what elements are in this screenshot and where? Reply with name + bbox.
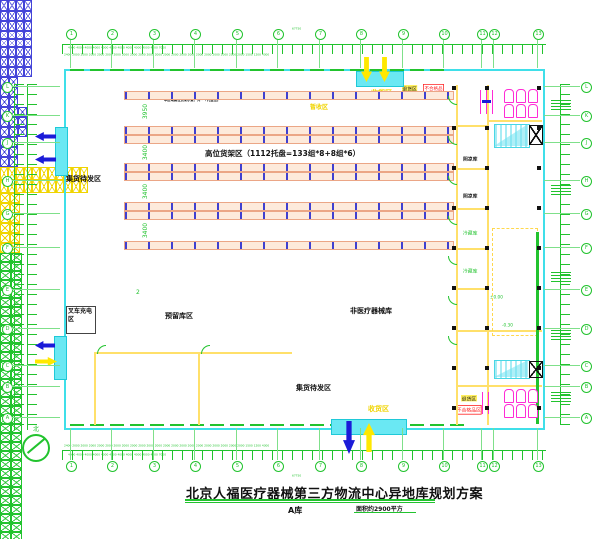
rack-cell [11,523,22,532]
grid-line [70,428,71,460]
grid-line [194,428,195,460]
rack-cell [0,352,11,361]
grid-number-bubble: 11 [477,29,488,40]
grid-letter-bubble: A [581,413,592,424]
overall-dimension-top: 67750 [292,27,301,30]
grid-line [236,40,237,68]
grid-line [194,40,195,68]
rack-cell [16,21,24,31]
grid-line [12,386,60,387]
rack-cell [16,11,24,21]
grid-number-bubble: 4 [190,29,201,40]
grid-letter-bubble: A [2,413,13,424]
bottom-wall-openings [70,424,470,426]
rack-cluster [0,67,32,77]
cool-room-2-label: 阴凉库 [463,192,477,199]
tick-dimensions-top: 2400 2000 2000 2000 2000 2000 2000 2000 … [64,53,269,56]
bottom-room-wall [94,352,96,425]
rack-cell [0,127,9,137]
rack-cell [11,487,22,496]
grid-letter-bubble: G [2,209,13,220]
grid-line [12,247,60,248]
rack-cell [16,67,24,77]
grid-line [360,428,361,460]
toilet-fixture [504,89,514,103]
rack-cell [11,451,22,460]
grid-line [544,86,580,87]
rack-cell [0,298,11,307]
rack-cell [0,262,11,271]
column-marker [485,366,489,370]
grid-number-bubble: 9 [398,29,409,40]
rack-cell [8,31,16,39]
north-compass-icon [22,434,50,462]
grid-line [277,428,278,460]
tick-dimensions-bottom: 2400 2000 2000 2000 2000 2000 2000 2000 … [64,444,269,447]
grid-number-bubble: 7 [315,29,326,40]
column-marker [452,126,456,130]
rack-cell [0,67,8,77]
rack-cell [16,47,24,57]
grid-number-bubble: 8 [356,461,367,472]
toilet-fixture [528,89,538,103]
rack-cell [56,180,64,193]
grid-line [111,40,112,68]
dimension-ticks-right [560,84,570,425]
stall-divider [482,392,483,414]
column-marker [485,126,489,130]
high-bay-zone-label: 高位货架区（1112托盘=133组*8+8组*6） [205,148,360,159]
high-bay-rack-row [124,211,454,220]
high-bay-rack-row [124,241,454,250]
toilet-stalls [504,404,538,418]
room-divider [456,385,542,387]
high-bay-rack-row [124,172,454,181]
column-marker [537,206,541,210]
grid-line [277,40,278,68]
grid-number-bubble: 1 [66,461,77,472]
column-marker [452,246,456,250]
column-marker [537,326,541,330]
rack-cell [0,271,11,280]
dock-left-bottom [54,336,67,380]
high-bay-rack-row [124,91,454,100]
rack-cell [0,451,11,460]
column-marker [537,86,541,90]
grid-line [544,365,580,366]
rack-cell [8,0,16,11]
rack-cell [0,343,11,352]
grid-line [70,40,71,68]
rack-cell [48,180,56,193]
rack-cell [11,532,22,539]
cold-room-1-label: 冷藏库 [463,229,477,236]
grid-number-bubble: 13 [533,461,544,472]
toilet-fixture [504,389,514,403]
rack-cell [11,460,22,469]
rack-cell [0,253,11,262]
corridor-wall-right [487,85,489,425]
grid-letter-bubble: E [2,285,13,296]
ramp-dashed-area [492,228,538,336]
wall-section-hatch [551,185,571,195]
north-label: 北 [33,424,39,433]
rack-cell [0,532,11,539]
bay-dimensions-bottom: 4000 4000 4000 4000 4000 4000 4000 4000 … [68,453,166,456]
outbound-arrow-icon [35,155,56,164]
toilet-fixture [504,404,514,418]
high-bay-rack-row [124,126,454,135]
outbound-arrow-icon [35,132,56,141]
grid-line [544,213,580,214]
grid-line [481,428,482,460]
column-marker [452,406,456,410]
rack-cell [0,523,11,532]
grid-line [12,417,60,418]
rack-cell [0,460,11,469]
rack-cell [11,496,22,505]
grid-line [493,40,494,68]
grid-line [12,180,60,181]
rack-cell [0,442,11,451]
rack-cluster [0,523,22,539]
rack-cell [0,21,8,31]
grid-line [402,40,403,68]
dock-left-top [55,127,68,176]
grid-number-bubble: 7 [315,461,326,472]
toilet-fixture [516,404,526,418]
column-marker [537,126,541,130]
rack-cell [0,157,9,167]
title-underline-2 [185,502,435,503]
grid-number-bubble: 8 [356,29,367,40]
outbound-arrow-icon [35,341,55,350]
grid-line [544,180,580,181]
grid-number-bubble: 1 [66,29,77,40]
rack-cell [24,11,32,21]
sink-fixture [482,100,491,103]
forklift-charging-box: 叉车充电区 [66,306,96,334]
grid-letter-bubble: J [581,138,592,149]
rack-cell [0,505,11,514]
column-marker [537,406,541,410]
area-underline [354,512,416,513]
wall-section-hatch [551,330,571,340]
rack-cell [24,47,32,57]
grid-line [493,428,494,460]
cold-room-2-label: 冷藏库 [463,267,477,274]
overall-dimension-bottom: 67750 [292,474,301,477]
rack-cell [8,21,16,31]
grid-letter-bubble: H [2,176,13,187]
grid-letter-bubble: J [2,138,13,149]
grid-line [537,428,538,460]
column-marker [452,166,456,170]
grid-line [537,40,538,68]
rack-cell [0,57,8,67]
rack-cell [8,57,16,67]
rack-cluster [0,0,32,11]
defective-bottom-tag: 不合格品区 [456,405,482,415]
rack-cell [24,67,32,77]
column-marker [452,86,456,90]
rack-cluster [0,31,32,47]
rack-cell [0,469,11,478]
toilet-stalls [504,104,538,118]
column-marker [485,246,489,250]
rack-cell [0,487,11,496]
rack-cell [0,31,8,39]
grid-line [360,40,361,68]
rack-cell [8,67,16,77]
rack-cell [8,11,16,21]
grid-line [12,328,60,329]
stall-divider [492,90,493,114]
grid-line [153,40,154,68]
rack-spacing-dim-1: 3950 [142,104,149,119]
high-bay-rack-row [124,163,454,172]
rack-cell [16,57,24,67]
grid-letter-bubble: L [2,82,13,93]
non-medical-zone-label: 非医疗器械库 [350,306,392,316]
grid-letter-bubble: K [581,111,592,122]
rack-cell [24,31,32,39]
grid-number-bubble: 6 [273,29,284,40]
temp-receiving-label: 暂收区 [310,102,328,111]
bottom-room-wall [198,352,200,425]
rack-cell [8,39,16,47]
rack-cell [0,39,8,47]
column-marker [485,86,489,90]
grid-line [544,115,580,116]
grid-letter-bubble: D [2,324,13,335]
grid-line [319,428,320,460]
rack-cell [24,21,32,31]
rack-cell [0,424,11,433]
rack-cell [40,180,48,193]
grid-line [402,428,403,460]
room-divider [487,120,542,122]
toilet-fixture [516,104,526,118]
rack-cell [0,496,11,505]
rack-cell [0,11,8,21]
grid-line [443,40,444,68]
grid-number-bubble: 9 [398,461,409,472]
grid-letter-bubble: L [581,82,592,93]
toilet-fixture [516,89,526,103]
grid-line [12,289,60,290]
toilet-fixture [528,389,538,403]
grid-number-bubble: 2 [107,461,118,472]
grid-line [544,328,580,329]
column-marker [452,326,456,330]
staging-bottom-label: 集货待发区 [296,383,331,393]
column-marker [452,286,456,290]
rack-cluster [0,47,32,67]
grid-letter-bubble: F [581,243,592,254]
grid-letter-bubble: C [2,361,13,372]
column-marker [485,206,489,210]
floor-plan-canvas: 67750 4000 4000 4000 4000 4000 4000 4000… [0,0,600,539]
stall-divider [488,392,489,414]
cool-room-1-label: 阴凉库 [463,155,477,162]
grid-number-bubble: 5 [232,29,243,40]
rack-cluster [0,11,32,31]
rack-cell [16,31,24,39]
grid-letter-bubble: B [581,382,592,393]
toilet-fixture [516,389,526,403]
rack-spacing-dim-4: 3400 [142,223,149,238]
grid-line [236,428,237,460]
grid-line [544,417,580,418]
grid-line [443,428,444,460]
block-label: A库 [288,505,302,516]
rack-cell [11,442,22,451]
rack-cell [40,167,48,180]
dimension-ticks-left [14,84,24,430]
grid-number-bubble: 5 [232,461,243,472]
rack-cell [11,514,22,523]
toilet-stalls [504,89,538,103]
grid-line [12,213,60,214]
rack-cell [0,514,11,523]
grid-letter-bubble: B [2,382,13,393]
dimension-ticks-left-inner [27,84,37,430]
column-marker [452,206,456,210]
reserved-zone-label: 预留库区 [165,311,193,321]
toilet-stalls [504,389,538,403]
rack-cell [11,505,22,514]
rack-cell [24,39,32,47]
stall-divider [480,90,481,114]
grid-letter-bubble: D [581,324,592,335]
section-mark: 2 [136,289,140,296]
column-marker [537,286,541,290]
rack-cell [0,97,9,107]
grid-line [12,365,60,366]
rack-cell [0,334,11,343]
high-bay-rack-row [124,202,454,211]
grid-line [544,386,580,387]
grid-line [111,428,112,460]
grid-number-bubble: 10 [439,29,450,40]
wall-section-hatch [551,392,571,402]
grid-number-bubble: 12 [489,461,500,472]
rack-cell [0,397,11,406]
grid-letter-bubble: F [2,243,13,254]
rack-cell [16,39,24,47]
rack-cell [24,57,32,67]
rack-cell [11,478,22,487]
column-marker [485,406,489,410]
toilet-fixture [504,104,514,118]
grid-number-bubble: 6 [273,461,284,472]
rack-cell [8,47,16,57]
rack-cell [11,469,22,478]
grid-letter-bubble: G [581,209,592,220]
wall-section-hatch [551,272,571,282]
rack-cell [0,47,8,57]
rack-cell [0,307,11,316]
column-marker [452,366,456,370]
grid-line [319,40,320,68]
grid-number-bubble: 11 [477,461,488,472]
staging-left-label: 集货待发区 [66,174,101,184]
grid-number-bubble: 13 [533,29,544,40]
returns-bottom-tag: 退货区 [461,395,477,401]
column-marker [537,366,541,370]
rack-cell [0,233,10,243]
rack-cell [0,433,11,442]
rack-cell [0,478,11,487]
grid-number-bubble: 2 [107,29,118,40]
grid-number-bubble: 4 [190,461,201,472]
grid-line [12,115,60,116]
rack-cell [0,223,10,233]
rack-cluster [0,469,22,523]
grid-letter-bubble: E [581,285,592,296]
column-marker [485,166,489,170]
rack-cell [0,193,10,203]
grid-number-bubble: 3 [149,461,160,472]
grid-letter-bubble: C [581,361,592,372]
rack-cell [11,433,22,442]
title-underline [185,499,435,501]
grid-line [544,247,580,248]
rack-spacing-dim-2: 3400 [142,145,149,160]
grid-line [544,142,580,143]
column-marker [485,326,489,330]
grid-line [12,86,60,87]
column-marker [537,246,541,250]
wall-section-hatch [551,100,571,110]
grid-letter-bubble: H [581,176,592,187]
grid-line [481,40,482,68]
grid-number-bubble: 10 [439,461,450,472]
grid-letter-bubble: K [2,111,13,122]
rack-cell [16,0,24,11]
high-bay-rack-row [124,135,454,144]
grid-line [153,428,154,460]
grid-number-bubble: 3 [149,29,160,40]
toilet-fixture [528,104,538,118]
rack-cell [24,0,32,11]
bottom-room-wall [94,352,292,354]
grid-line [544,289,580,290]
rack-cell [0,0,8,11]
column-marker [537,166,541,170]
receiving-bottom-label: 收货区 [368,404,389,414]
grid-number-bubble: 12 [489,29,500,40]
grid-line [12,142,60,143]
column-marker [485,286,489,290]
rack-spacing-dim-3: 3400 [142,184,149,199]
